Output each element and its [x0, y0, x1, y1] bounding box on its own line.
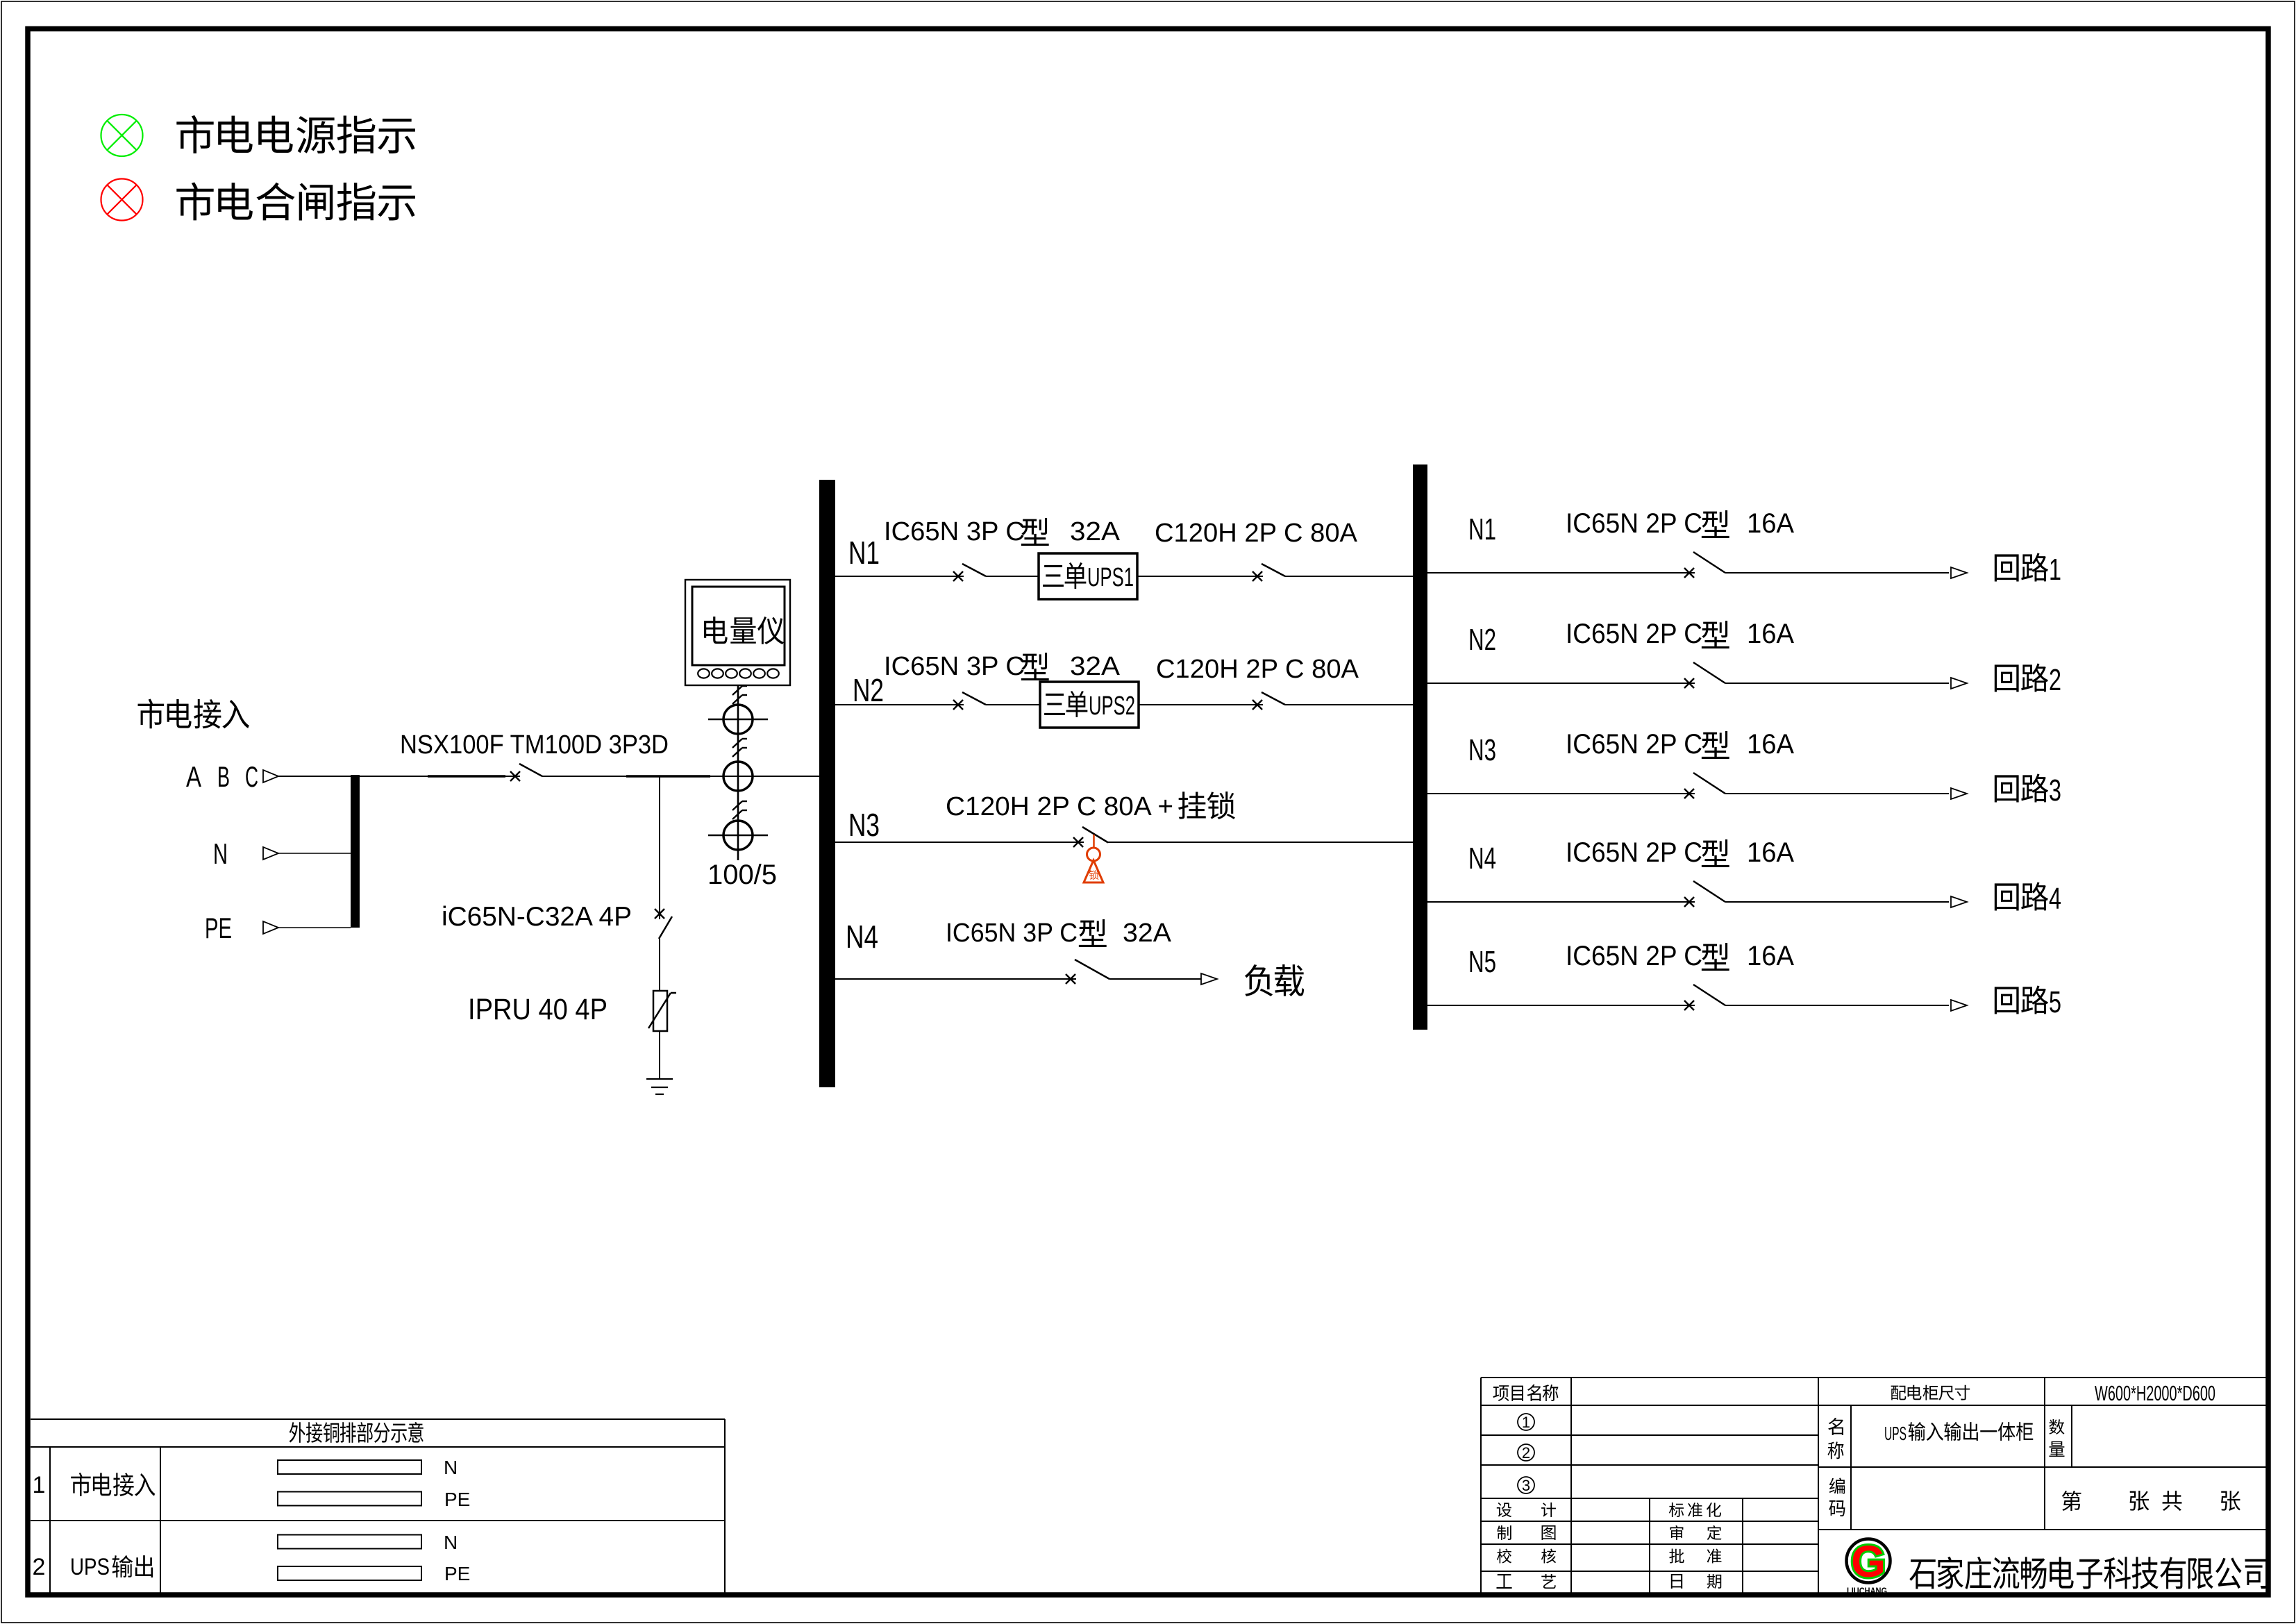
svg-text:W600*H2000*D600: W600*H2000*D600 — [2095, 1381, 2215, 1405]
svg-text:3: 3 — [1522, 1477, 1530, 1494]
svg-text:16A: 16A — [1747, 729, 1794, 760]
svg-text:N1: N1 — [848, 535, 880, 571]
svg-text:UPS2: UPS2 — [1089, 692, 1135, 721]
svg-text:UPS1: UPS1 — [1087, 563, 1134, 592]
svg-text:IC65N 2P C: IC65N 2P C — [1566, 508, 1702, 539]
svg-text:16A: 16A — [1747, 941, 1794, 971]
svg-text:4: 4 — [2049, 882, 2061, 916]
svg-text:IC65N 3P C: IC65N 3P C — [884, 652, 1025, 681]
svg-text:PE: PE — [444, 1489, 470, 1510]
svg-text:IC65N 2P C: IC65N 2P C — [1566, 619, 1702, 649]
svg-text:N5: N5 — [1468, 945, 1496, 979]
svg-text:UPS: UPS — [70, 1554, 110, 1580]
svg-text:A: A — [186, 760, 201, 793]
svg-text:N: N — [444, 1457, 458, 1478]
svg-text:NSX100F TM100D 3P3D: NSX100F TM100D 3P3D — [400, 730, 669, 760]
svg-text:N: N — [444, 1532, 458, 1553]
svg-text:IC65N 2P C: IC65N 2P C — [1566, 941, 1702, 971]
svg-text:N: N — [213, 837, 228, 870]
svg-text:IC65N 3P C: IC65N 3P C — [884, 517, 1025, 546]
svg-text:IPRU 40 4P: IPRU 40 4P — [468, 993, 607, 1026]
svg-text:16A: 16A — [1747, 619, 1794, 649]
svg-text:1: 1 — [1522, 1414, 1530, 1431]
svg-text:IC65N 2P C: IC65N 2P C — [1566, 729, 1702, 760]
svg-text:32A: 32A — [1070, 517, 1121, 546]
svg-text:PE: PE — [205, 912, 232, 944]
svg-text:iC65N-C32A 4P: iC65N-C32A 4P — [442, 902, 632, 932]
svg-text:C120H 2P C 80A: C120H 2P C 80A — [1155, 519, 1358, 548]
svg-text:C120H 2P C 80A +: C120H 2P C 80A + — [946, 792, 1173, 821]
svg-text:PE: PE — [444, 1563, 470, 1584]
svg-text:3: 3 — [2049, 773, 2061, 807]
svg-text:G: G — [1851, 1537, 1886, 1587]
svg-text:N4: N4 — [846, 919, 878, 955]
svg-text:2: 2 — [2049, 663, 2061, 697]
svg-text:16A: 16A — [1747, 508, 1794, 539]
svg-text:1: 1 — [33, 1472, 46, 1498]
svg-text:1: 1 — [2049, 553, 2061, 587]
svg-text:2: 2 — [33, 1554, 46, 1580]
svg-text:32A: 32A — [1123, 919, 1172, 948]
svg-text:N1: N1 — [1468, 512, 1496, 546]
svg-text:2: 2 — [1522, 1444, 1530, 1462]
svg-text:32A: 32A — [1070, 652, 1121, 681]
svg-text:IC65N 3P C: IC65N 3P C — [946, 919, 1078, 948]
svg-text:N2: N2 — [853, 672, 884, 708]
svg-text:5: 5 — [2049, 985, 2061, 1019]
svg-text:N3: N3 — [848, 807, 880, 843]
svg-text:UPS: UPS — [1884, 1423, 1907, 1444]
svg-text:LIUCHANG: LIUCHANG — [1847, 1585, 1887, 1596]
svg-text:IC65N 2P C: IC65N 2P C — [1566, 837, 1702, 868]
svg-text:16A: 16A — [1747, 837, 1794, 868]
svg-text:N2: N2 — [1468, 623, 1496, 657]
svg-text:C120H 2P C 80A: C120H 2P C 80A — [1156, 655, 1359, 684]
svg-text:B: B — [217, 760, 230, 793]
svg-text:100/5: 100/5 — [707, 860, 777, 890]
svg-text:N3: N3 — [1468, 733, 1496, 767]
svg-text:C: C — [245, 760, 258, 793]
svg-text:N4: N4 — [1468, 842, 1496, 876]
